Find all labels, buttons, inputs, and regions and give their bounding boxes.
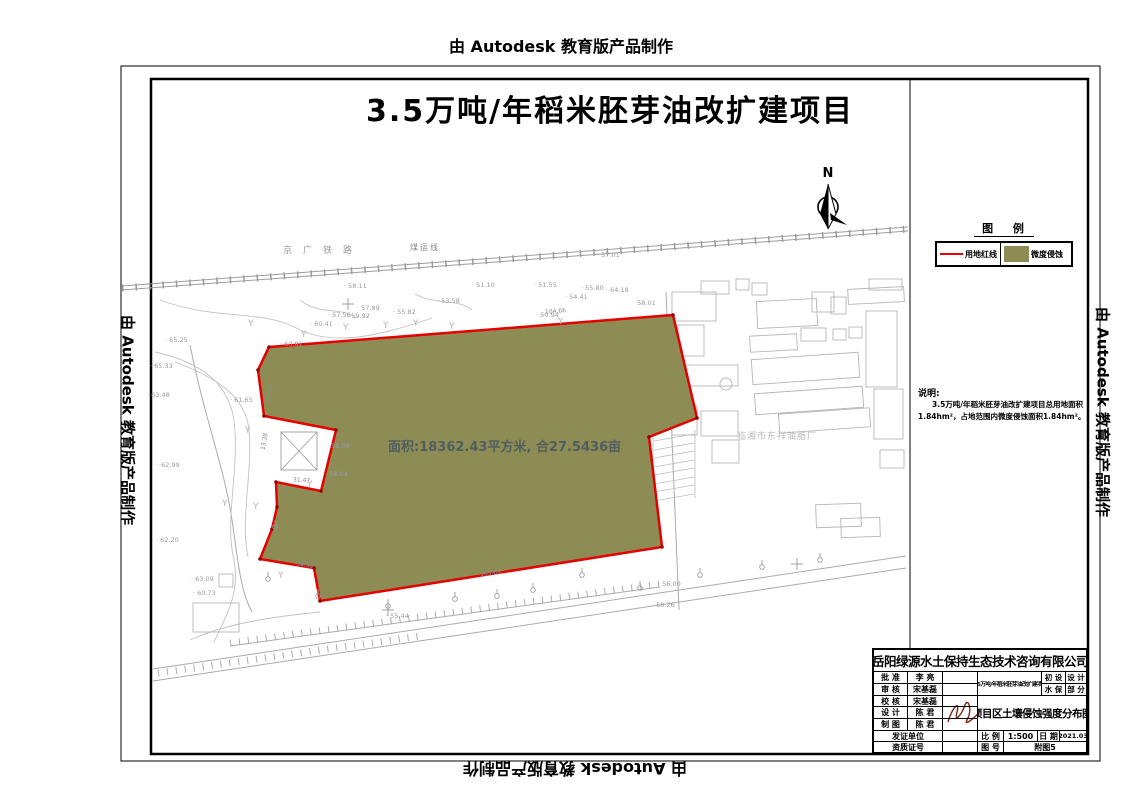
north-label: N (823, 166, 834, 181)
drawing-sheet: 由 Autodesk 教育版产品制作 由 Autodesk 教育版产品制作 由 … (0, 0, 1122, 793)
notes-block: 说明: 3.5万吨/年稻米胚芽油改扩建项目总用地面积 1.84hm²，占地范围内… (918, 386, 1090, 422)
lamp-post-symbol (818, 553, 823, 562)
signature-row-name: 李 亮 (908, 672, 943, 684)
signature-row-label: 批 准 (874, 672, 908, 684)
stage-cell: 水 保 (1042, 684, 1066, 696)
page-title: 3.5万吨/年稻米胚芽油改扩建项目 (366, 86, 854, 130)
signature-cell (943, 707, 978, 719)
tree-symbol: Y (253, 502, 259, 512)
spot-elevation: 58.11 (344, 282, 367, 290)
spot-elevation: 58.04 (325, 470, 348, 478)
lamp-post-symbol (266, 572, 271, 581)
tree-symbol: Y (558, 317, 564, 327)
erosion-swatch (1004, 246, 1029, 262)
tree-symbol: Y (248, 319, 254, 329)
boundary-vertex (660, 545, 664, 549)
tree-symbol: Y (383, 321, 389, 331)
spot-elevation: 56.00 (658, 580, 681, 588)
boundary-vertex (319, 489, 323, 493)
boundary-vertex (262, 414, 266, 418)
company-name: 岳阳绿源水土保持生态技术咨询有限公司 (874, 650, 1086, 672)
spot-elevation: 59.92 (347, 312, 370, 320)
spot-elevation: 58.26 (652, 601, 675, 609)
watermark-left: 由 Autodesk 教育版产品制作 (118, 315, 139, 525)
legend-item-erosion: 微度侵蚀 (1001, 243, 1066, 265)
north-arrow-icon (818, 184, 847, 229)
legend: 图 例 用地红线 微度侵蚀 (935, 220, 1073, 267)
lamp-post-symbol (495, 589, 500, 598)
spot-elevation: 57.01 (597, 251, 620, 259)
spot-elevation: 60.73 (193, 589, 216, 597)
notes-line: 1.84hm²，占地范围内微度侵蚀面积1.84hm²。 (918, 411, 1090, 423)
notes-line: 3.5万吨/年稻米胚芽油改扩建项目总用地面积 (918, 399, 1090, 411)
signature-row-name: 宋基磊 (908, 684, 943, 696)
parcel-area-label: 面积:18362.43平方米, 合27.5436亩 (388, 436, 621, 455)
legend-title: 图 例 (935, 220, 1073, 236)
spot-elevation: 65.33 (150, 362, 173, 370)
signature-cell (943, 719, 978, 731)
spot-elevation: 55.44 (386, 612, 409, 620)
boundary-vertex (275, 505, 279, 509)
tree-symbol: Y (413, 319, 419, 329)
cert-unit-value (943, 731, 978, 742)
spot-elevation: 54.41 (565, 293, 588, 301)
project-parcel (256, 313, 699, 603)
signature-cell (943, 672, 978, 684)
signature-row-label: 设 计 (874, 707, 908, 719)
legend-item-label: 用地红线 (965, 249, 997, 260)
boundary-vertex (334, 428, 338, 432)
signature-row-name: 陈 君 (908, 707, 943, 719)
boundary-vertex (695, 416, 699, 420)
watermark-right: 由 Autodesk 教育版产品制作 (1093, 307, 1114, 517)
signature-row-label: 制 图 (874, 719, 908, 731)
stage-cell: 设 计 (1066, 672, 1086, 684)
date-label: 日 期 (1038, 731, 1060, 742)
lamp-post-symbol (638, 581, 643, 590)
tree-symbol: Y (343, 323, 349, 333)
railway-label: 京广铁路 (283, 243, 363, 256)
notes-heading: 说明: (918, 386, 1090, 399)
watermark-bottom: 由 Autodesk 教育版产品制作 (463, 758, 687, 782)
signature-cell (943, 684, 978, 696)
signature-row-label: 审 核 (874, 684, 908, 696)
boundary-vertex (647, 435, 651, 439)
spot-elevation: 55.82 (393, 308, 416, 316)
excluded-structure (281, 432, 317, 470)
spot-elevation: 57.89 (357, 304, 380, 312)
fig-no-label: 图 号 (978, 742, 1004, 752)
scale-label: 比 例 (978, 731, 1004, 742)
spot-elevation: 51.10 (472, 281, 495, 289)
legend-item-label: 微度侵蚀 (1031, 249, 1063, 260)
scale-value: 1:500 (1004, 731, 1038, 742)
tree-symbol: Y (222, 499, 228, 509)
cert-unit-label: 发证单位 (874, 731, 943, 742)
spot-elevation: 62.99 (157, 461, 180, 469)
signature-cell (943, 696, 978, 708)
date-value: 2021.03 (1060, 731, 1086, 742)
railway (122, 227, 908, 290)
stage-cell: 初 设 (1042, 672, 1066, 684)
parcel-boundary (258, 315, 697, 601)
boundary-vertex (267, 345, 271, 349)
spot-elevation: 65.25 (165, 336, 188, 344)
lamp-post-symbol (698, 568, 703, 577)
title-block: 岳阳绿源水土保持生态技术咨询有限公司 批 准李 亮审 核宋基磊校 核宋基磊设 计… (872, 648, 1088, 754)
spot-elevation: 60.41 (310, 320, 333, 328)
tree-symbol: Y (278, 571, 284, 581)
tree-symbol: Y (245, 426, 251, 436)
spot-elevation: 60.81 (280, 340, 303, 348)
spot-elevation: 61.65 (230, 396, 253, 404)
lamp-post-symbol (453, 592, 458, 601)
spot-elevation: 53.58 (437, 297, 460, 305)
spot-elevation: 64.18 (606, 286, 629, 294)
boundary-vertex (256, 368, 260, 372)
legend-box: 用地红线 微度侵蚀 (935, 241, 1073, 267)
spot-elevation: 63.09 (191, 575, 214, 583)
watermark-top: 由 Autodesk 教育版产品制作 (449, 33, 673, 57)
boundary-vertex (274, 480, 278, 484)
spot-elevation: 51.55 (534, 281, 557, 289)
stage-cell: 部 分 (1066, 684, 1086, 696)
railway-label-2: 煤运线 (410, 242, 440, 253)
boundary-vertex (318, 599, 322, 603)
factory-name-label: 临湘市东祥油脂厂 (737, 429, 817, 442)
drawing-title: 项目区土壤侵蚀强度分布图 (978, 696, 1086, 731)
lamp-post-symbol (760, 560, 765, 569)
fig-no-value: 附图5 (1004, 742, 1086, 752)
cert-no-label: 资质证号 (874, 742, 943, 752)
spot-elevation: 58.08 (327, 442, 350, 450)
spot-elevation: 55.80 (581, 284, 604, 292)
spot-elevation: 58.01 (633, 299, 656, 307)
legend-item-boundary: 用地红线 (937, 243, 1001, 265)
tree-symbol: Y (301, 330, 307, 340)
signature-row-name: 陈 君 (908, 719, 943, 731)
lamp-post-symbol (531, 583, 536, 592)
tree-symbol: Y (449, 322, 455, 332)
lamp-post-symbol (580, 568, 585, 577)
spot-elevation: 63.48 (147, 391, 170, 399)
tree-symbol: Y (307, 480, 313, 490)
signature-row-name: 宋基磊 (908, 696, 943, 708)
red-boundary-symbol (940, 253, 963, 255)
boundary-vertex (258, 557, 262, 561)
project-name-cell: 3.5万吨/年稻米胚芽油改扩建项目 (978, 672, 1042, 696)
spot-elevation: 62.20 (156, 536, 179, 544)
boundary-vertex (671, 313, 675, 317)
cert-no-value (943, 742, 978, 752)
signature-row-label: 校 核 (874, 696, 908, 708)
